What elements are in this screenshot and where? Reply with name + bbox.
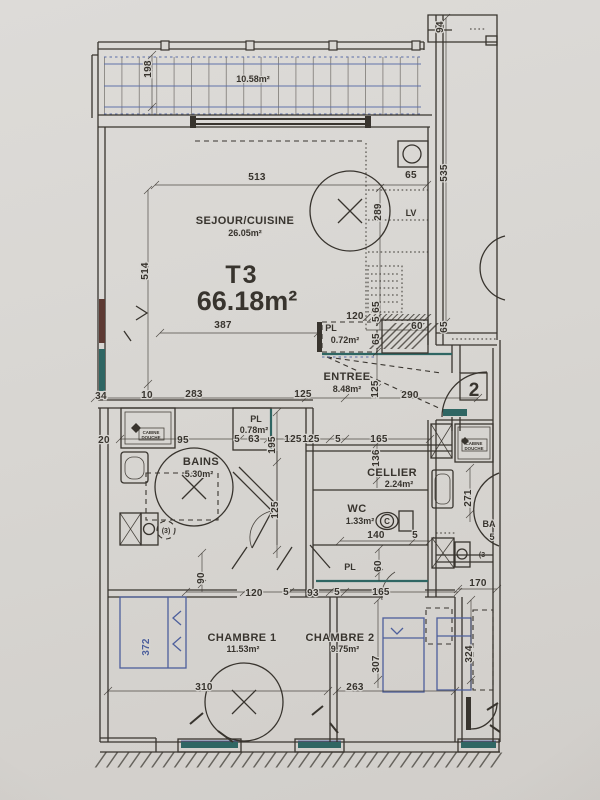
door-leaves xyxy=(232,545,330,570)
room-label-entree: ENTREE xyxy=(323,371,370,383)
dimension-label: 125 xyxy=(302,434,320,445)
dimension-label: 198 xyxy=(143,60,154,78)
dimension-label: 125 xyxy=(270,501,281,519)
dimension-label: 5 xyxy=(412,530,418,541)
dimension-label: 5 xyxy=(283,587,289,598)
bed-icon xyxy=(120,597,186,668)
dimension-label: 324 xyxy=(464,645,475,663)
room-area-chambre2: 9.75m² xyxy=(331,644,360,654)
circle-cross-icon-partial xyxy=(474,473,499,546)
room-label-pl-chambre: PL xyxy=(344,562,356,572)
window-opening-mark xyxy=(124,306,147,341)
dimension-label: 513 xyxy=(248,172,266,183)
dimension-label: 5 xyxy=(334,587,340,598)
dimension-label: 5 xyxy=(335,434,341,445)
floor-plan-svg: 1985139453565289514387120655656065341028… xyxy=(0,0,600,800)
shower-label-line2: DOUCHE xyxy=(464,446,483,451)
balcony-post xyxy=(329,41,337,50)
dimension-label: 125 xyxy=(294,389,312,400)
dimension-label: 65 xyxy=(439,321,450,333)
dimension-label: 535 xyxy=(439,164,450,182)
dimension-label: 90 xyxy=(196,572,207,584)
total-area: 66.18m² xyxy=(197,286,298,316)
room-area-wc: 1.33m² xyxy=(346,516,375,526)
bedrooms xyxy=(120,597,452,742)
floor-plan-photo: 1985139453565289514387120655656065341028… xyxy=(0,0,600,800)
room-area-chambre1: 11.53m² xyxy=(226,644,259,654)
dimension-label: 125 xyxy=(370,380,381,398)
room-label-chambre1: CHAMBRE 1 xyxy=(208,632,277,644)
toilet-mark: C xyxy=(384,517,390,526)
dimension-label: 307 xyxy=(371,655,382,673)
entry-sill xyxy=(443,409,467,416)
dimension-label: 120 xyxy=(245,588,263,599)
sliding-door xyxy=(193,119,368,124)
washer-note: (3 xyxy=(479,552,485,559)
dimension-label: 140 xyxy=(367,530,385,541)
balcony-post xyxy=(161,41,169,50)
dishwasher-label: LV xyxy=(406,208,417,218)
dimension-label: 65 xyxy=(405,170,417,181)
neighbor-unit xyxy=(431,424,500,732)
room-label-pl-bains: PL xyxy=(250,414,262,424)
washer-note: (3) xyxy=(162,528,171,535)
dimension-label: 165 xyxy=(370,434,388,445)
room-label-pl-entree: PL xyxy=(325,323,337,333)
dimension-label: 290 xyxy=(401,390,419,401)
room-label-wc: WC xyxy=(347,503,366,515)
room-area-sejour: 26.05m² xyxy=(228,228,262,238)
neighbor-door-arc xyxy=(480,236,505,300)
unit-door-number: 2 xyxy=(469,380,480,401)
door-leaf xyxy=(466,697,471,730)
dimension-label: 60 xyxy=(373,560,384,572)
neighbor-corridor xyxy=(428,15,505,742)
room-area-pl-bains: 0.78m² xyxy=(240,425,269,435)
dimension-label: 165 xyxy=(372,587,390,598)
balcony-area: 10.58m² xyxy=(236,74,270,84)
bed-icon xyxy=(383,618,424,692)
dimension-label: 271 xyxy=(463,489,474,507)
balcony-post xyxy=(412,41,420,50)
dimension-label: 387 xyxy=(214,320,232,331)
dimension-label: 514 xyxy=(140,262,151,280)
dimension-label: 5 xyxy=(234,434,240,445)
room-area-pl-entree: 0.72m² xyxy=(331,335,360,345)
dimension-label: 5 xyxy=(371,316,382,322)
dimension-label: 125 xyxy=(284,434,302,445)
dimension-label: 95 xyxy=(177,435,189,446)
room-label-cellier: CELLIER xyxy=(367,467,417,479)
apartment-type: T3 xyxy=(225,261,258,289)
balcony xyxy=(92,41,432,128)
dimension-label: 34 xyxy=(95,391,107,402)
dimension-label: 93 xyxy=(307,588,319,599)
room-label-sejour: SEJOUR/CUISINE xyxy=(196,215,295,227)
room-label-bains: BAINS xyxy=(183,456,219,468)
balcony-post xyxy=(246,41,254,50)
left-window-sill xyxy=(99,349,105,391)
bathroom xyxy=(120,408,233,545)
dimension-label: 170 xyxy=(469,578,487,589)
bains-door-leaf xyxy=(252,511,272,548)
neighbor-bains-label: BA xyxy=(483,519,496,529)
dimension-label: 289 xyxy=(373,203,384,221)
dimension-label: 94 xyxy=(435,21,446,33)
shower-label-line2: DOUCHE xyxy=(141,435,160,440)
dimension-label: 195 xyxy=(267,436,278,454)
dimension-label: 136 xyxy=(371,449,382,467)
room-area-cellier: 2.24m² xyxy=(385,479,414,489)
wc-fixtures xyxy=(376,511,413,531)
room-area-entree: 8.48m² xyxy=(333,384,362,394)
dimension-label: 65 xyxy=(371,301,382,313)
room-label-chambre2: CHAMBRE 2 xyxy=(306,632,375,644)
left-window xyxy=(99,299,105,343)
dimension-label: 20 xyxy=(98,435,110,446)
dimension-label: 60 xyxy=(411,321,423,332)
dimension-label: 120 xyxy=(346,311,364,322)
neighbor-bains-area: 5 xyxy=(489,532,494,542)
dimension-label: 10 xyxy=(141,390,153,401)
room-area-bains: 5.30m² xyxy=(185,469,214,479)
dimension-label: 372 xyxy=(141,638,152,656)
dimension-label: 65 xyxy=(371,333,382,345)
dimension-label: 263 xyxy=(346,682,364,693)
dimension-label: 63 xyxy=(248,434,260,445)
entry-sight-lines xyxy=(327,357,441,409)
dimension-label: 283 xyxy=(185,389,203,400)
dimension-label: 310 xyxy=(195,682,213,693)
